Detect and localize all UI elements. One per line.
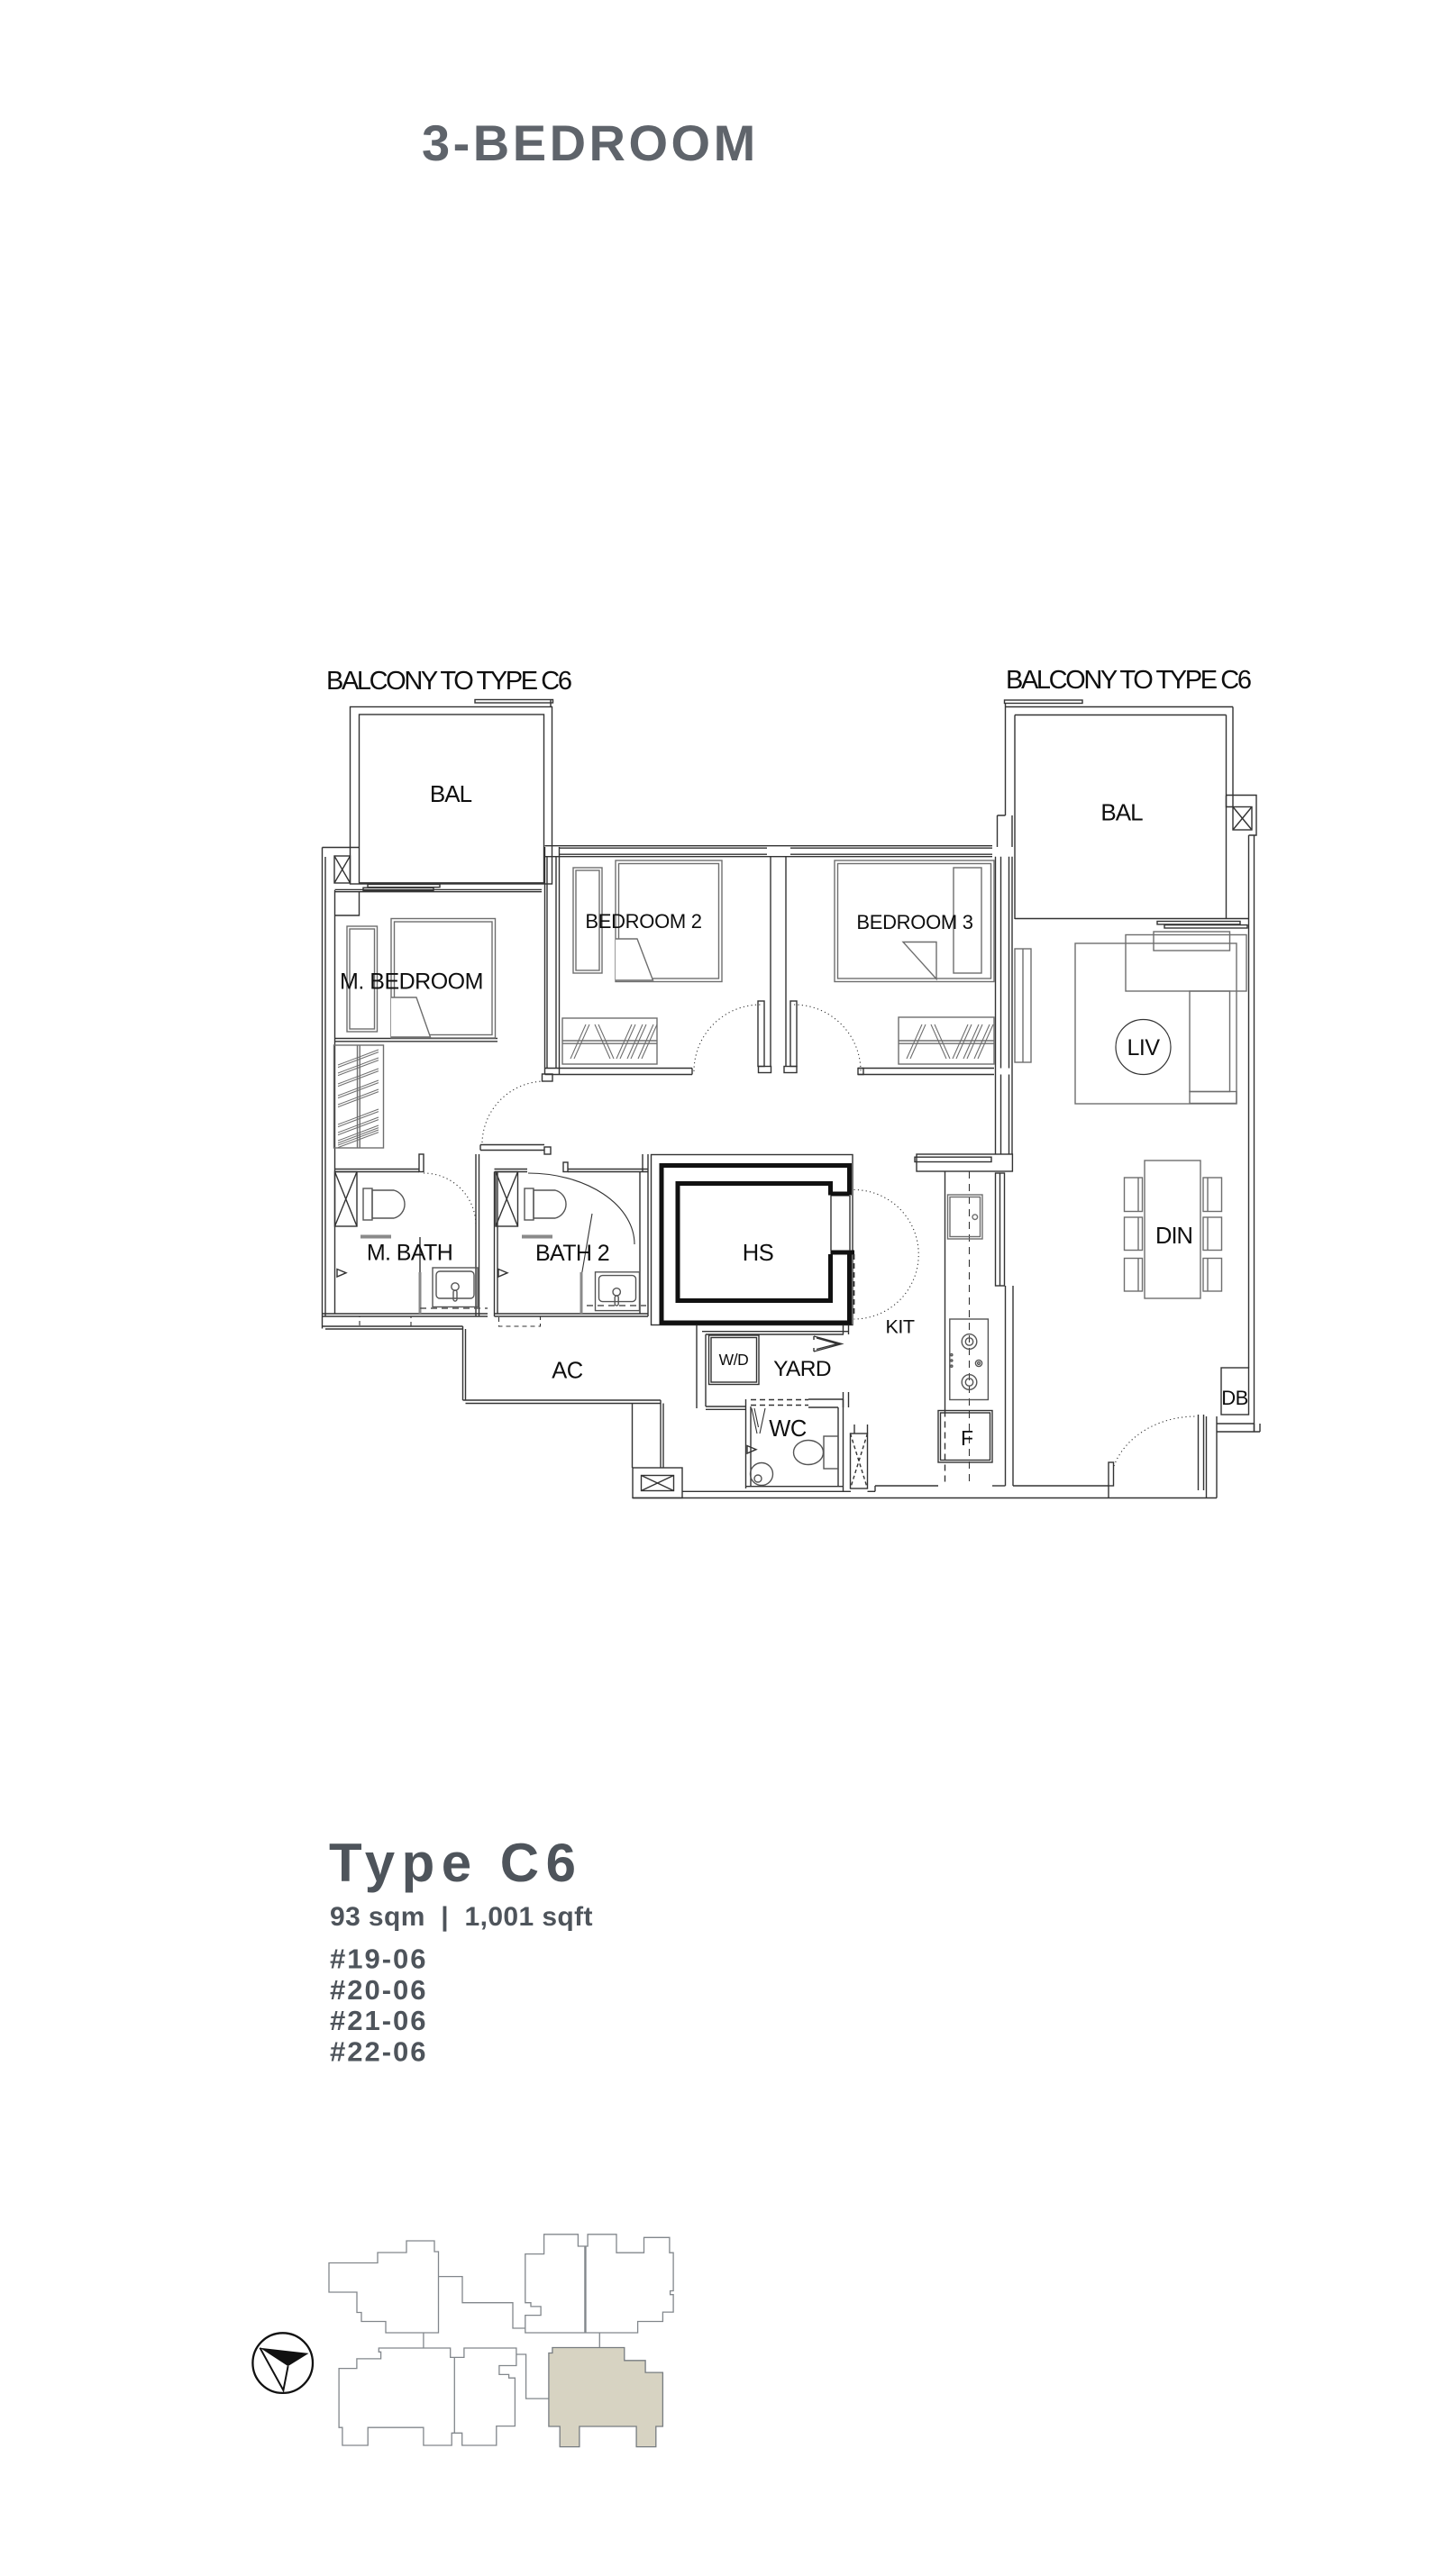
svg-text:BATH 2: BATH 2 <box>535 1241 609 1266</box>
svg-text:#19-06: #19-06 <box>330 1943 428 1975</box>
svg-text:#21-06: #21-06 <box>330 2005 428 2036</box>
svg-text:#22-06: #22-06 <box>330 2035 428 2067</box>
svg-text:YARD: YARD <box>773 1357 831 1381</box>
svg-text:3-BEDROOM: 3-BEDROOM <box>422 114 759 171</box>
svg-text:AC: AC <box>552 1359 583 1384</box>
svg-text:DIN: DIN <box>1155 1224 1192 1249</box>
svg-text:WC: WC <box>769 1416 807 1442</box>
svg-text:BAL: BAL <box>430 780 472 807</box>
svg-text:#20-06: #20-06 <box>330 1974 428 2006</box>
svg-text:Type C6: Type C6 <box>329 1833 582 1893</box>
svg-text:KIT: KIT <box>886 1316 915 1338</box>
svg-text:M. BEDROOM: M. BEDROOM <box>340 969 483 995</box>
svg-text:M. BATH: M. BATH <box>367 1241 452 1266</box>
svg-text:HS: HS <box>743 1241 773 1266</box>
svg-text:BALCONY TO TYPE C6: BALCONY TO TYPE C6 <box>326 667 571 696</box>
svg-text:W/D: W/D <box>719 1351 749 1369</box>
svg-text:BAL: BAL <box>1100 799 1143 826</box>
svg-text:DB: DB <box>1221 1387 1248 1409</box>
svg-text:F: F <box>961 1426 973 1450</box>
svg-text:BALCONY TO TYPE C6: BALCONY TO TYPE C6 <box>1006 666 1251 695</box>
svg-text:93 sqm | 1,001 sqft: 93 sqm | 1,001 sqft <box>330 1902 593 1932</box>
svg-text:LIV: LIV <box>1127 1035 1160 1060</box>
svg-text:BEDROOM 2: BEDROOM 2 <box>585 910 701 933</box>
svg-text:BEDROOM 3: BEDROOM 3 <box>856 911 972 933</box>
